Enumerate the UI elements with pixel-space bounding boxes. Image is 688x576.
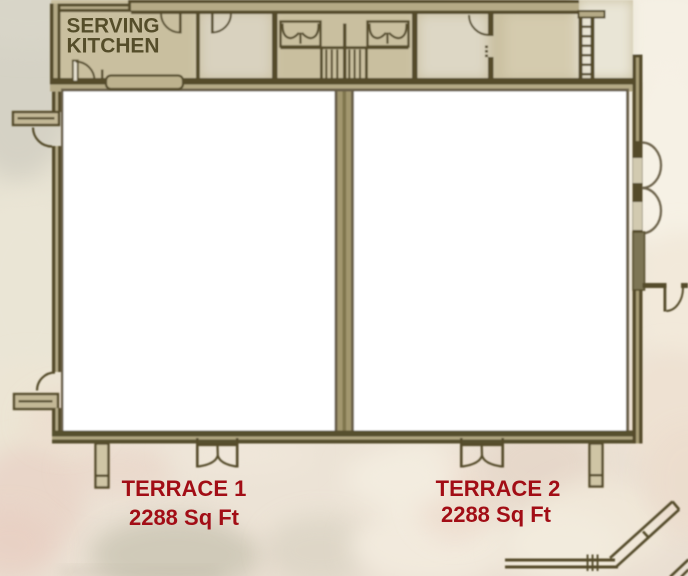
svg-text:2288 Sq Ft: 2288 Sq Ft [441, 502, 552, 527]
svg-text:2288 Sq Ft: 2288 Sq Ft [129, 505, 240, 530]
svg-text:TERRACE 2: TERRACE 2 [436, 476, 561, 501]
svg-text:TERRACE 1: TERRACE 1 [122, 476, 247, 501]
svg-text:KITCHEN: KITCHEN [67, 34, 160, 58]
